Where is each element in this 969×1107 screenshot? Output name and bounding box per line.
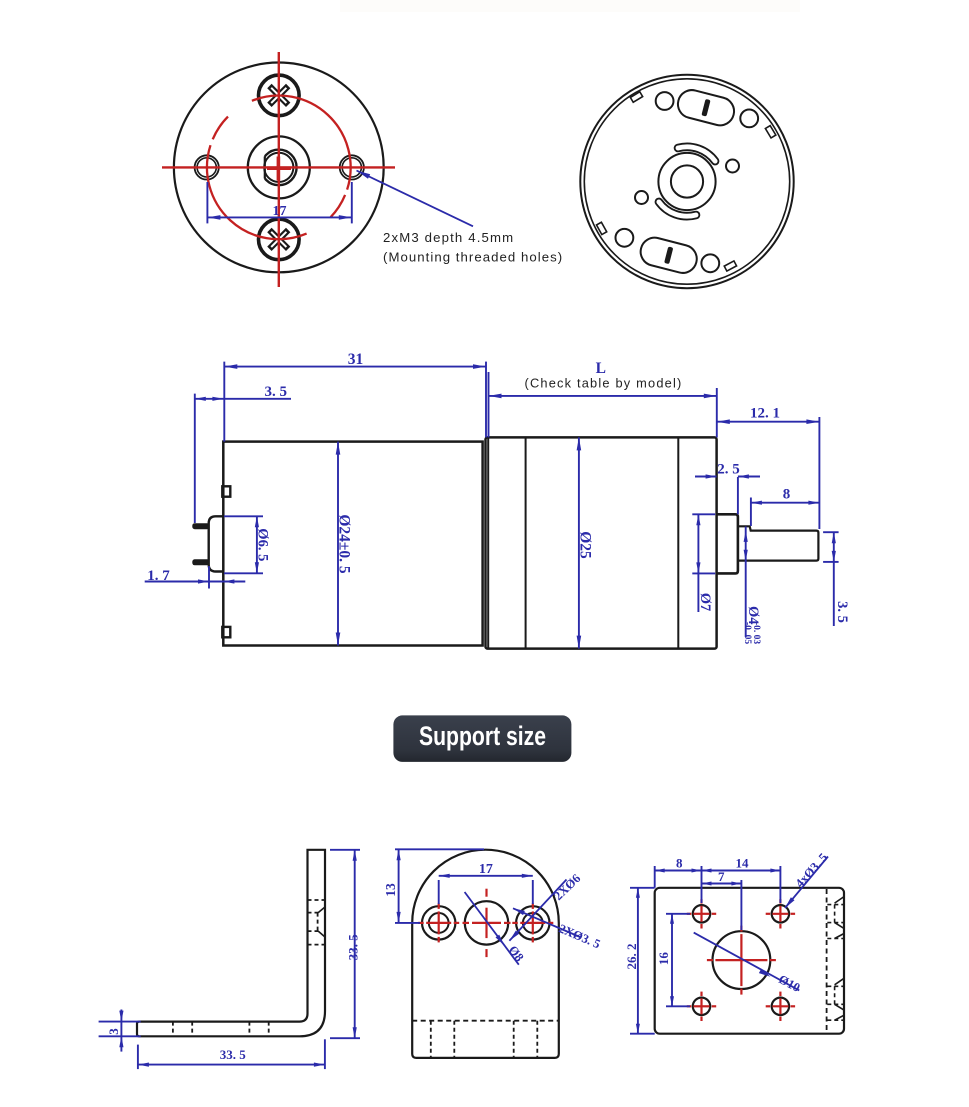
svg-text:-0. 05: -0. 05 — [742, 622, 752, 644]
svg-text:7: 7 — [718, 869, 725, 884]
svg-text:1. 7: 1. 7 — [147, 568, 170, 584]
svg-text:Ø24±0. 5: Ø24±0. 5 — [336, 514, 353, 574]
svg-text:33. 5: 33. 5 — [220, 1047, 247, 1062]
svg-text:3. 5: 3. 5 — [834, 601, 850, 623]
svg-text:26. 2: 26. 2 — [624, 944, 639, 970]
svg-text:3: 3 — [106, 1028, 121, 1035]
svg-text:16: 16 — [656, 952, 671, 966]
svg-text:13: 13 — [383, 883, 398, 897]
svg-text:17: 17 — [479, 862, 493, 877]
svg-text:Ø7: Ø7 — [697, 593, 713, 612]
svg-text:14: 14 — [736, 856, 750, 871]
svg-text:33. 5: 33. 5 — [346, 934, 361, 961]
svg-text:Ø25: Ø25 — [577, 531, 594, 559]
svg-text:8: 8 — [676, 856, 683, 871]
svg-text:12. 1: 12. 1 — [750, 406, 780, 422]
svg-text:31: 31 — [348, 351, 364, 368]
svg-text:(Mounting threaded holes): (Mounting threaded holes) — [383, 250, 563, 265]
svg-text:(Check table by model): (Check table by model) — [525, 376, 683, 391]
svg-text:2. 5: 2. 5 — [717, 462, 740, 478]
svg-text:Support size: Support size — [419, 721, 546, 751]
svg-text:17: 17 — [273, 204, 287, 219]
svg-text:Ø6. 5: Ø6. 5 — [255, 528, 271, 561]
svg-text:8: 8 — [783, 486, 791, 502]
svg-text:3. 5: 3. 5 — [265, 384, 288, 400]
svg-text:2xM3 depth 4.5mm: 2xM3 depth 4.5mm — [383, 230, 514, 245]
svg-text:L: L — [596, 360, 606, 377]
